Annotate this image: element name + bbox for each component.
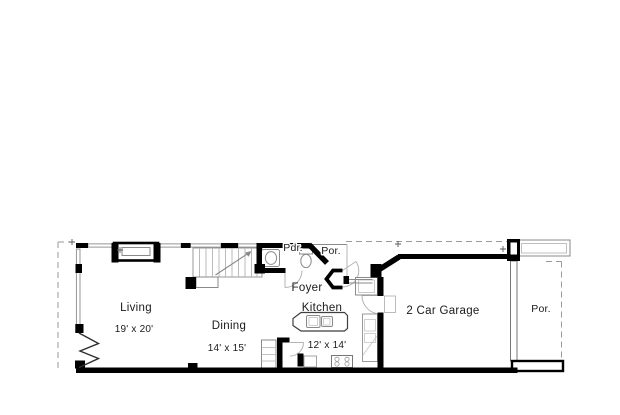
room-dim-kitchen: 12' x 14' <box>308 340 346 351</box>
room-dim-dining: 14' x 15' <box>208 343 246 354</box>
pantry-shelves <box>262 340 277 368</box>
pantry-wall <box>283 338 290 343</box>
kitchen-garage-wall <box>378 313 384 369</box>
room-label-living: Living <box>120 302 152 314</box>
powder-room-wall <box>259 268 286 273</box>
front-window <box>88 244 112 247</box>
front-window <box>160 244 181 247</box>
pantry-wall <box>277 338 283 371</box>
room-label-garage: 2 Car Garage <box>406 305 479 317</box>
stair-direction-arrow <box>216 251 252 275</box>
staircase <box>193 248 262 288</box>
room-label-side-porch: Por. <box>531 303 550 315</box>
kitchen-sink <box>307 316 333 328</box>
floor-plan-drawing: Living 19' x 20' Dining 14' x 15' Foyer … <box>0 0 620 415</box>
under-stair-closet <box>196 277 218 288</box>
front-window <box>238 244 259 247</box>
front-door-recess <box>327 271 343 288</box>
room-label-dining: Dining <box>212 320 246 332</box>
floor-plan-page: Living 19' x 20' Dining 14' x 15' Foyer … <box>0 0 620 415</box>
garage-entry-step <box>385 296 396 313</box>
garage-entry-door-swing <box>362 296 381 315</box>
sink-fixture <box>262 250 280 267</box>
front-window <box>191 244 222 247</box>
room-label-powder-room: Pdr. <box>283 242 302 254</box>
refrigerator <box>356 278 378 296</box>
range-fixture <box>332 356 353 368</box>
room-label-entry-porch: Por. <box>321 245 340 257</box>
garage-diagonal-wall <box>380 257 399 269</box>
wall-pilaster <box>188 363 198 368</box>
side-window <box>76 249 80 326</box>
bottom-wall <box>76 368 518 374</box>
fireplace <box>112 243 161 263</box>
room-label-foyer: Foyer <box>292 282 323 294</box>
room-dim-living: 19' x 20' <box>115 324 153 335</box>
side-porch-step <box>512 361 563 371</box>
garage-door <box>511 261 518 361</box>
room-label-kitchen: Kitchen <box>302 302 342 314</box>
kitchen-garage-wall <box>378 277 384 296</box>
kitchen-counter <box>363 314 378 362</box>
garage-front-wall <box>398 254 508 259</box>
side-porch-beam <box>518 240 570 256</box>
base-cabinet <box>304 356 317 367</box>
